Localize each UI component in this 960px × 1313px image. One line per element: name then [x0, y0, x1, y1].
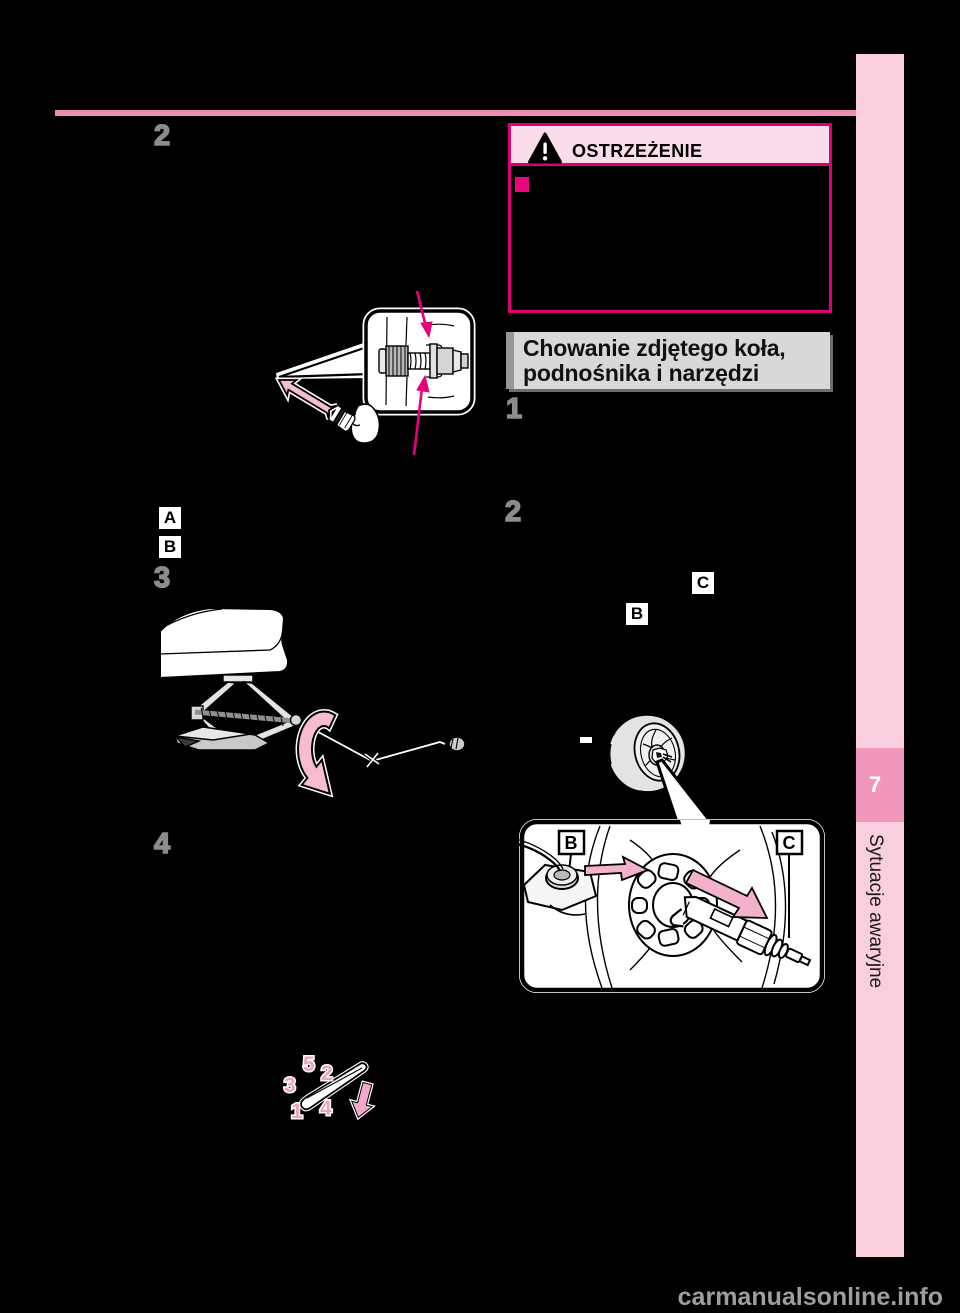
svg-text:2: 2: [321, 1062, 333, 1085]
svg-text:C: C: [783, 833, 796, 853]
svg-text:4: 4: [320, 1097, 332, 1120]
svg-text:3: 3: [284, 1074, 296, 1097]
svg-text:B: B: [565, 833, 578, 853]
svg-text:5: 5: [303, 1053, 315, 1076]
svg-text:1: 1: [291, 1100, 303, 1123]
